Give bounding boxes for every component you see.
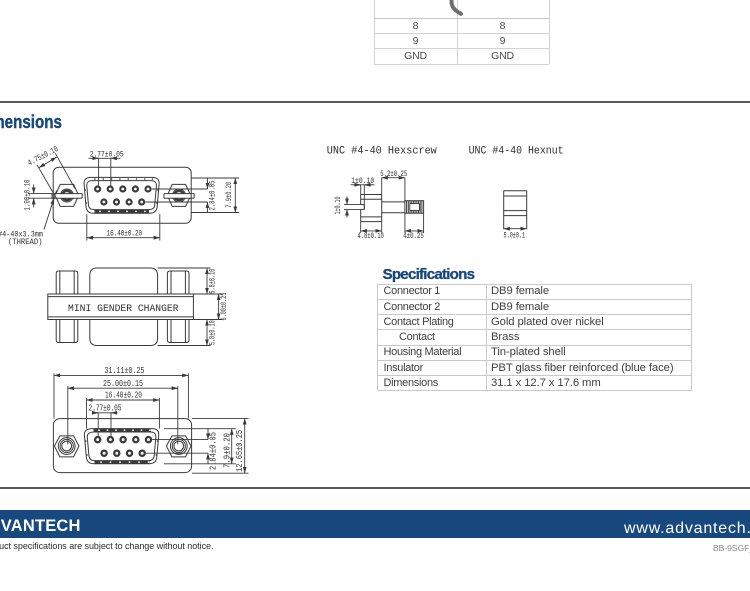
svg-text:(THREAD): (THREAD): [8, 237, 43, 247]
svg-text:5.8±0.10: 5.8±0.10: [208, 320, 218, 345]
svg-text:UNC #4-40 Hexnut: UNC #4-40 Hexnut: [469, 146, 564, 158]
svg-text:2.77±0.05: 2.77±0.05: [90, 149, 124, 159]
svg-text:1±0.10: 1±0.10: [351, 176, 374, 186]
svg-text:6.00±0.25: 6.00±0.25: [219, 293, 229, 321]
svg-text:1.00±0.10: 1.00±0.10: [22, 180, 32, 211]
svg-text:5.0±0.1: 5.0±0.1: [504, 230, 526, 240]
svg-text:4.8±0.10: 4.8±0.10: [357, 231, 384, 241]
svg-text:5.8±0.10: 5.8±0.10: [208, 269, 218, 294]
svg-text:1±0.10: 1±0.10: [333, 197, 343, 215]
svg-text:7.9±0.20: 7.9±0.20: [223, 433, 233, 468]
svg-text:2.84±0.05: 2.84±0.05: [208, 181, 218, 211]
svg-text:UNC #4-40 Hexscrew: UNC #4-40 Hexscrew: [327, 146, 437, 158]
svg-text:7.9±0.20: 7.9±0.20: [224, 182, 234, 208]
svg-text:MINI GENDER CHANGER: MINI GENDER CHANGER: [68, 303, 179, 315]
svg-text:2.77±0.05: 2.77±0.05: [89, 404, 122, 414]
svg-text:25.00±0.15: 25.00±0.15: [103, 379, 143, 389]
svg-text:2.84±0.05: 2.84±0.05: [208, 432, 218, 470]
svg-text:12.65±0.25: 12.65±0.25: [235, 430, 245, 472]
svg-text:31.11±0.25: 31.11±0.25: [104, 366, 144, 376]
svg-text:16.40±0.20: 16.40±0.20: [105, 391, 142, 401]
svg-text:5.2±0.25: 5.2±0.25: [380, 169, 407, 179]
svg-text:4±0.25: 4±0.25: [403, 231, 424, 241]
svg-text:16.40±0.20: 16.40±0.20: [107, 229, 143, 239]
